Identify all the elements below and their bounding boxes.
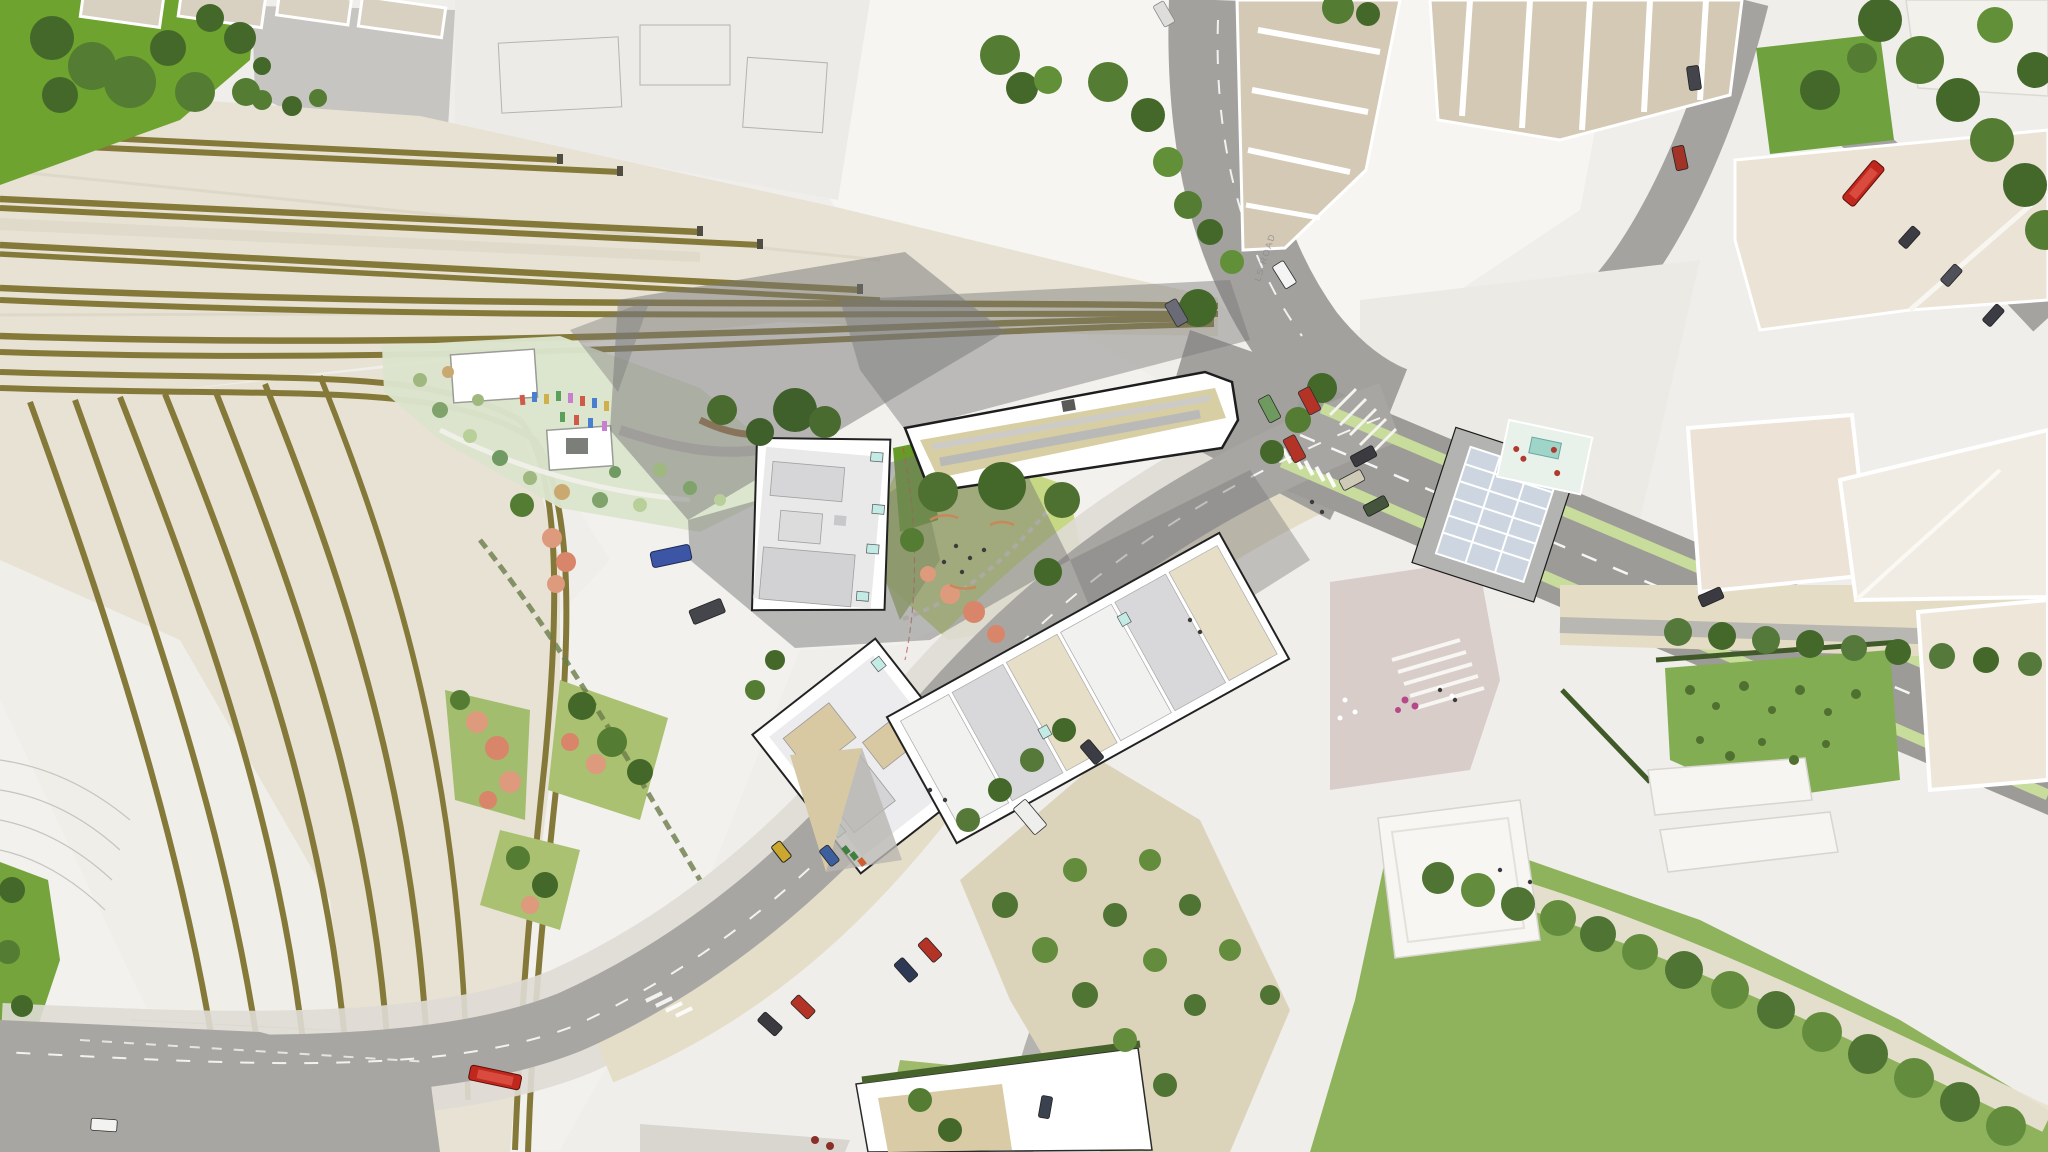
lounger bbox=[560, 412, 565, 422]
skylight bbox=[866, 544, 879, 554]
tree bbox=[809, 406, 841, 438]
lounger bbox=[602, 421, 607, 431]
person-dot bbox=[943, 798, 947, 802]
tree bbox=[988, 778, 1012, 802]
bush-meadow bbox=[1824, 708, 1832, 716]
bush-meadow bbox=[1822, 740, 1830, 748]
tree bbox=[1894, 1058, 1934, 1098]
tree bbox=[282, 96, 302, 116]
building-a-panel bbox=[759, 547, 855, 607]
tree bbox=[992, 892, 1018, 918]
tree bbox=[956, 808, 980, 832]
tree bbox=[1044, 482, 1080, 518]
tree bbox=[1153, 1073, 1177, 1097]
garden-sketch-tree bbox=[653, 463, 667, 477]
garden-sketch-tree bbox=[472, 394, 484, 406]
garden-pavilion-core bbox=[566, 438, 588, 454]
tree bbox=[900, 528, 924, 552]
tree bbox=[1174, 191, 1202, 219]
person-dot bbox=[1498, 868, 1502, 872]
person-dot bbox=[968, 556, 972, 560]
tree bbox=[1970, 118, 2014, 162]
lounger bbox=[604, 401, 609, 411]
tree bbox=[568, 692, 596, 720]
lounger bbox=[532, 392, 537, 402]
tree bbox=[1848, 1034, 1888, 1074]
tree bbox=[1977, 7, 2013, 43]
tree-salmon bbox=[521, 896, 539, 914]
tree bbox=[175, 72, 215, 112]
campus-building-se bbox=[1918, 600, 2048, 790]
garden-sketch-tree bbox=[714, 494, 726, 506]
tree bbox=[1143, 948, 1167, 972]
tree bbox=[1153, 147, 1183, 177]
tree bbox=[1896, 36, 1944, 84]
person-dot bbox=[1198, 630, 1202, 634]
tree bbox=[1260, 440, 1284, 464]
tree bbox=[908, 1088, 932, 1112]
garden-sketch-tree bbox=[523, 471, 537, 485]
bush-meadow bbox=[1758, 738, 1766, 746]
tree bbox=[196, 4, 224, 32]
tree bbox=[765, 650, 785, 670]
tree bbox=[1179, 894, 1201, 916]
tree bbox=[1260, 985, 1280, 1005]
tree bbox=[1020, 748, 1044, 772]
garden-sketch-tree bbox=[609, 466, 621, 478]
picnic-dot bbox=[1395, 707, 1401, 713]
tree bbox=[1540, 900, 1576, 936]
tree bbox=[1072, 982, 1098, 1008]
tree bbox=[1088, 62, 1128, 102]
tree bbox=[745, 680, 765, 700]
tree bbox=[1461, 873, 1495, 907]
building-c-rooftop-vent bbox=[1061, 399, 1076, 412]
bush-meadow bbox=[1696, 736, 1704, 744]
tree bbox=[11, 995, 33, 1017]
lounger bbox=[588, 418, 593, 428]
tree bbox=[1665, 951, 1703, 989]
tree-salmon bbox=[479, 791, 497, 809]
tree bbox=[1063, 858, 1087, 882]
tree bbox=[2018, 652, 2042, 676]
tree bbox=[1986, 1106, 2026, 1146]
tree-salmon bbox=[466, 711, 488, 733]
buffer-stop bbox=[617, 166, 623, 176]
tree bbox=[1103, 903, 1127, 927]
person-dot bbox=[1438, 688, 1442, 692]
tree bbox=[1847, 43, 1877, 73]
tree bbox=[1034, 66, 1062, 94]
picnic-dot bbox=[1402, 697, 1409, 704]
bush-meadow bbox=[1851, 689, 1861, 699]
tree-salmon bbox=[499, 771, 521, 793]
tree bbox=[0, 877, 25, 903]
person-dot bbox=[960, 570, 964, 574]
tree-salmon bbox=[561, 733, 579, 751]
garden-sketch-tree bbox=[432, 402, 448, 418]
person-dot bbox=[1188, 618, 1192, 622]
tree bbox=[1885, 639, 1911, 665]
person-dot bbox=[928, 788, 932, 792]
building-a-panel bbox=[770, 461, 845, 501]
car-white bbox=[91, 1118, 118, 1132]
tree bbox=[1006, 72, 1038, 104]
tree bbox=[1131, 98, 1165, 132]
tree bbox=[1219, 939, 1241, 961]
bush-meadow bbox=[1739, 681, 1749, 691]
garden-sketch-tree bbox=[633, 498, 647, 512]
tree bbox=[450, 690, 470, 710]
tree bbox=[707, 395, 737, 425]
tree-salmon bbox=[542, 528, 562, 548]
person-dot bbox=[954, 544, 958, 548]
cafe-table bbox=[1343, 698, 1348, 703]
skylight bbox=[872, 504, 885, 514]
garden-sketch-tree bbox=[683, 481, 697, 495]
tree bbox=[1197, 219, 1223, 245]
tree bbox=[597, 727, 627, 757]
skylight bbox=[870, 452, 883, 462]
tree bbox=[1973, 647, 1999, 673]
tree bbox=[1796, 630, 1824, 658]
tree bbox=[1501, 887, 1535, 921]
tree bbox=[1800, 70, 1840, 110]
masterplan-canvas: LS ROAD bbox=[0, 0, 2048, 1152]
bush-meadow bbox=[1725, 751, 1735, 761]
tree bbox=[42, 77, 78, 113]
tree bbox=[30, 16, 74, 60]
tree bbox=[627, 759, 653, 785]
tree-salmon bbox=[586, 754, 606, 774]
tree bbox=[1052, 718, 1076, 742]
tree bbox=[1841, 635, 1867, 661]
garden-sketch-tree bbox=[592, 492, 608, 508]
garden-sketch-tree bbox=[554, 484, 570, 500]
tree bbox=[532, 872, 558, 898]
umbrella-red bbox=[826, 1142, 834, 1150]
umbrella-red bbox=[811, 1136, 819, 1144]
tree bbox=[1711, 971, 1749, 1009]
tree-salmon bbox=[920, 566, 936, 582]
bush-meadow bbox=[1712, 702, 1720, 710]
bush-meadow bbox=[1685, 685, 1695, 695]
tree bbox=[309, 89, 327, 107]
tree bbox=[1757, 991, 1795, 1029]
bush-meadow bbox=[1768, 706, 1776, 714]
building-a bbox=[742, 428, 899, 622]
lounger bbox=[520, 395, 526, 405]
tree-salmon bbox=[547, 575, 565, 593]
lounger bbox=[574, 415, 579, 425]
lounger bbox=[556, 391, 561, 401]
tree bbox=[253, 57, 271, 75]
buffer-stop bbox=[557, 154, 563, 164]
tree bbox=[1113, 1028, 1137, 1052]
tree bbox=[1422, 862, 1454, 894]
cafe-table bbox=[1450, 694, 1455, 699]
cafe-table bbox=[1353, 710, 1358, 715]
person-dot bbox=[1320, 510, 1324, 514]
tree bbox=[746, 418, 774, 446]
tree bbox=[1929, 643, 1955, 669]
tree bbox=[1940, 1082, 1980, 1122]
tree bbox=[978, 462, 1026, 510]
tree bbox=[1752, 626, 1780, 654]
tree bbox=[252, 90, 272, 110]
tree bbox=[1356, 2, 1380, 26]
tree bbox=[1936, 78, 1980, 122]
building-a-panel-small bbox=[834, 515, 847, 526]
tree bbox=[1034, 558, 1062, 586]
masterplan-view: LS ROAD bbox=[0, 0, 2048, 1152]
tree bbox=[1139, 849, 1161, 871]
cafe-table bbox=[1338, 716, 1343, 721]
tree bbox=[918, 472, 958, 512]
garden-sketch-tree bbox=[442, 366, 454, 378]
tree bbox=[506, 846, 530, 870]
tree bbox=[1622, 934, 1658, 970]
tree bbox=[510, 493, 534, 517]
person-dot bbox=[1453, 698, 1457, 702]
tree bbox=[1220, 250, 1244, 274]
bush-meadow bbox=[1789, 755, 1799, 765]
buffer-stop bbox=[757, 239, 763, 249]
lounger bbox=[580, 396, 585, 406]
tree-salmon bbox=[556, 552, 576, 572]
tree bbox=[938, 1118, 962, 1142]
tree-salmon bbox=[485, 736, 509, 760]
lounger bbox=[544, 394, 549, 404]
skylight bbox=[856, 591, 869, 601]
tree-salmon bbox=[987, 625, 1005, 643]
tree bbox=[1580, 916, 1616, 952]
tree bbox=[1032, 937, 1058, 963]
tree bbox=[2003, 163, 2047, 207]
lounger bbox=[568, 393, 573, 403]
garden-sketch-tree bbox=[492, 450, 508, 466]
tree bbox=[1708, 622, 1736, 650]
garden-sketch-tree bbox=[463, 429, 477, 443]
person-dot bbox=[1528, 880, 1532, 884]
picnic-dot bbox=[1412, 703, 1419, 710]
lounger bbox=[592, 398, 597, 408]
tree bbox=[1858, 0, 1902, 42]
tree bbox=[1184, 994, 1206, 1016]
person-dot bbox=[942, 560, 946, 564]
tree bbox=[104, 56, 156, 108]
tree bbox=[150, 30, 186, 66]
tree bbox=[1664, 618, 1692, 646]
tree bbox=[1802, 1012, 1842, 1052]
tree bbox=[980, 35, 1020, 75]
tree bbox=[224, 22, 256, 54]
garden-sketch-tree bbox=[413, 373, 427, 387]
building-a-panel bbox=[778, 510, 822, 544]
buffer-stop bbox=[697, 226, 703, 236]
person-dot bbox=[1310, 500, 1314, 504]
bush-meadow bbox=[1795, 685, 1805, 695]
tree-salmon bbox=[963, 601, 985, 623]
person-dot bbox=[982, 548, 986, 552]
